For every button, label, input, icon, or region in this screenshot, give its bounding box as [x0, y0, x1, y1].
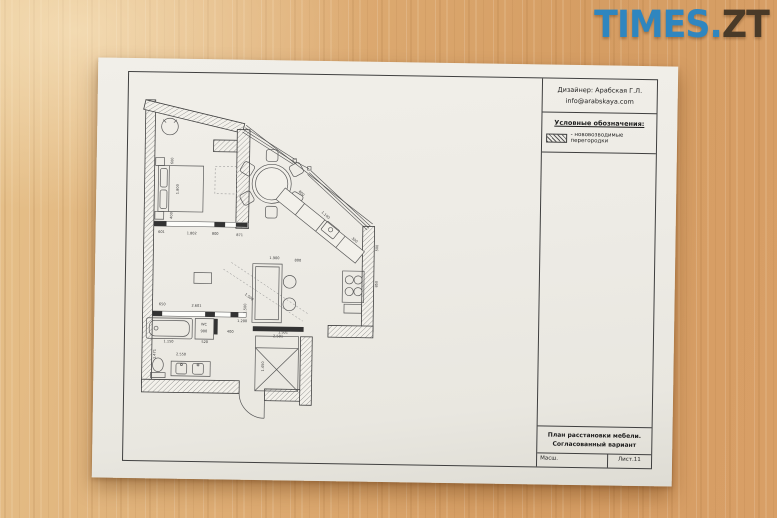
- sheet-title: План расстановки мебели. Согласованный в…: [537, 425, 651, 454]
- floor-plan: 6001.8004006011.8028008718001.1003005008…: [132, 80, 437, 427]
- legend-item-label: - нововозводимые перегородки: [571, 132, 653, 145]
- desk-photo: TIMES.ZT: [0, 0, 777, 518]
- svg-text:2.601: 2.601: [191, 304, 201, 308]
- title-block-spacer: [538, 153, 656, 427]
- svg-text:1.500: 1.500: [243, 303, 247, 313]
- partitions: [152, 221, 305, 336]
- drawing-sheet: 6001.8004006011.8028008718001.1003005008…: [92, 57, 679, 486]
- svg-text:871: 871: [236, 233, 243, 237]
- svg-text:800: 800: [212, 232, 219, 236]
- svg-text:500: 500: [375, 245, 379, 252]
- svg-text:1.150: 1.150: [164, 339, 174, 343]
- svg-text:400: 400: [169, 212, 173, 219]
- svg-text:1.450: 1.450: [261, 361, 265, 371]
- svg-text:1.800: 1.800: [176, 184, 180, 194]
- drawing-frame: 6001.8004006011.8028008718001.1003005008…: [122, 71, 658, 469]
- legend-title: Условные обозначения:: [546, 119, 652, 129]
- title-block-bottom-row: Масш. Лист.11: [537, 452, 651, 468]
- scale-cell: Масш.: [537, 453, 607, 467]
- svg-text:601: 601: [158, 230, 165, 234]
- designer-name: Дизайнер: Арабская Г.Л.: [547, 85, 653, 98]
- svg-text:800: 800: [298, 190, 306, 197]
- svg-text:1.200: 1.200: [237, 319, 247, 323]
- designer-info: Дизайнер: Арабская Г.Л. info@arabskaya.c…: [543, 78, 658, 114]
- svg-text:400: 400: [227, 330, 234, 334]
- logo-text-zt: ZT: [722, 3, 769, 46]
- designer-email: info@arabskaya.com: [547, 96, 653, 109]
- svg-text:1.501: 1.501: [278, 330, 288, 334]
- svg-text:1.471: 1.471: [153, 349, 157, 359]
- svg-text:900: 900: [201, 329, 208, 333]
- walls: [139, 100, 376, 407]
- svg-text:2.501: 2.501: [273, 334, 283, 338]
- svg-text:800: 800: [294, 258, 301, 262]
- svg-text:650: 650: [159, 302, 166, 306]
- title-block-column: Дизайнер: Арабская Г.Л. info@arabskaya.c…: [536, 78, 657, 468]
- svg-text:600: 600: [170, 157, 174, 164]
- svg-text:850: 850: [375, 281, 379, 288]
- svg-text:1.802: 1.802: [187, 231, 197, 235]
- svg-text:520: 520: [201, 340, 208, 344]
- bedroom-furniture: [155, 118, 238, 220]
- logo-text-times: TIMES.: [594, 3, 722, 46]
- svg-text:2.550: 2.550: [176, 352, 186, 356]
- bathroom-furniture: [146, 318, 214, 379]
- times-zt-logo: TIMES.ZT: [594, 3, 769, 46]
- new-partition-swatch-icon: [546, 133, 568, 142]
- sheet-title-line2: Согласованный вариант: [541, 440, 647, 451]
- sheet-number-cell: Лист.11: [607, 455, 652, 469]
- svg-text:1.900: 1.900: [269, 256, 279, 260]
- svg-text:WC: WC: [201, 322, 208, 326]
- legend-block: Условные обозначения: - нововозводимые п…: [542, 113, 657, 155]
